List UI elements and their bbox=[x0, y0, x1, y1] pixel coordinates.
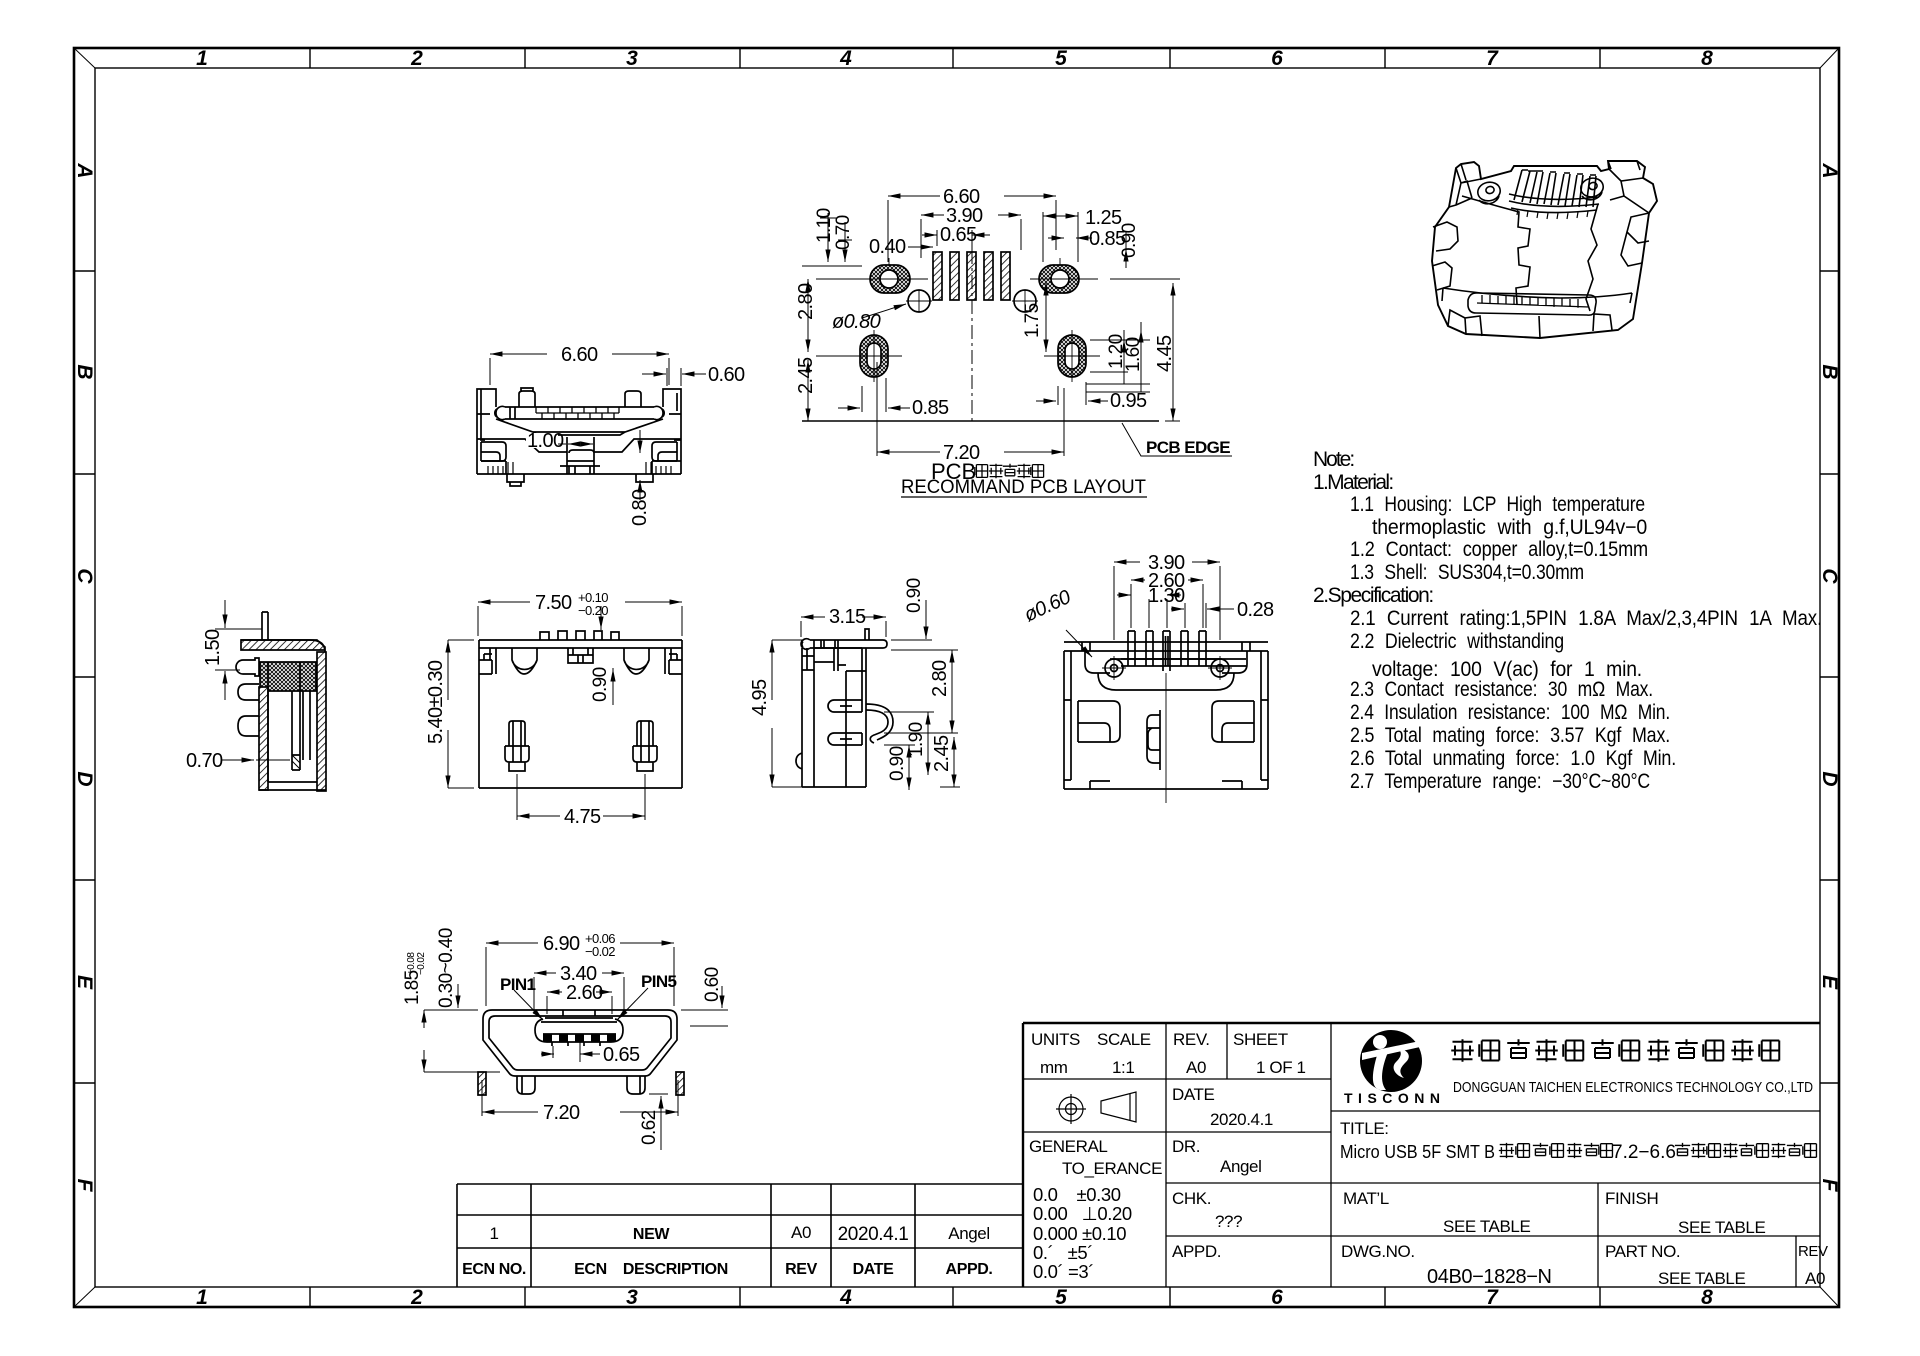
svg-text:DATE: DATE bbox=[853, 1261, 894, 1278]
svg-text:PIN5: PIN5 bbox=[641, 972, 677, 991]
svg-text:1: 1 bbox=[489, 1224, 498, 1243]
svg-text:1.3 Shell: SUS304,t=0.30mm: 1.3 Shell: SUS304,t=0.30mm bbox=[1350, 561, 1584, 584]
svg-text:PART NO.: PART NO. bbox=[1605, 1242, 1680, 1261]
svg-text:C: C bbox=[73, 568, 96, 584]
svg-text:1.1 Housing: LCP High temp: 1.1 Housing: LCP High temperature bbox=[1350, 493, 1645, 516]
svg-text:A0: A0 bbox=[791, 1223, 811, 1242]
svg-text:0.0 ±0.30: 0.0 ±0.30 bbox=[1033, 1184, 1121, 1205]
svg-text:−0.02: −0.02 bbox=[585, 944, 615, 959]
svg-text:1.Material:: 1.Material: bbox=[1313, 471, 1394, 494]
svg-text:DONGGUAN TAICHEN ELECTRONICS: DONGGUAN TAICHEN ELECTRONICS TECHNOLOGY … bbox=[1453, 1080, 1813, 1096]
svg-text:Note:: Note: bbox=[1313, 448, 1355, 471]
svg-text:7.2−6.6: 7.2−6.6 bbox=[1612, 1142, 1676, 1163]
svg-text:4.75: 4.75 bbox=[564, 806, 601, 828]
svg-text:NEW: NEW bbox=[633, 1226, 670, 1243]
svg-text:0.90: 0.90 bbox=[1119, 223, 1140, 258]
svg-text:ECN DESCRIPTION: ECN DESCRIPTION bbox=[574, 1261, 728, 1278]
svg-text:0.28: 0.28 bbox=[1237, 599, 1274, 621]
svg-text:1.2 Contact: copper alloy,t: 1.2 Contact: copper alloy,t=0.15mm bbox=[1350, 538, 1648, 561]
svg-text:2: 2 bbox=[410, 47, 423, 70]
svg-text:4.95: 4.95 bbox=[749, 679, 771, 716]
svg-text:2.80: 2.80 bbox=[795, 283, 817, 320]
svg-text:2.Specification:: 2.Specification: bbox=[1313, 584, 1434, 607]
svg-text:thermoplastic with g.f,UL94v: thermoplastic with g.f,UL94v−0 bbox=[1372, 516, 1647, 539]
svg-text:TISCONN: TISCONN bbox=[1344, 1090, 1446, 1106]
svg-text:2.4 Insulation resistance:: 2.4 Insulation resistance: 100 MΩ Min. bbox=[1350, 701, 1670, 724]
svg-text:6.60: 6.60 bbox=[561, 344, 598, 366]
svg-text:REV: REV bbox=[1798, 1243, 1828, 1260]
svg-text:2020.4.1: 2020.4.1 bbox=[1210, 1110, 1273, 1129]
svg-text:D: D bbox=[1818, 771, 1841, 786]
svg-text:0.000 ±0.10: 0.000 ±0.10 bbox=[1033, 1223, 1126, 1244]
svg-text:8: 8 bbox=[1701, 47, 1713, 70]
svg-text:3.15: 3.15 bbox=[829, 606, 866, 628]
svg-text:ECN NO.: ECN NO. bbox=[462, 1261, 526, 1278]
svg-text:0.70: 0.70 bbox=[186, 750, 223, 772]
svg-text:1: 1 bbox=[196, 47, 208, 70]
svg-text:C: C bbox=[1818, 568, 1841, 584]
svg-text:2.6 Total unmating force:: 2.6 Total unmating force: 1.0 Kgf Min. bbox=[1350, 747, 1676, 770]
svg-text:F: F bbox=[73, 1179, 96, 1193]
svg-text:???: ??? bbox=[1215, 1212, 1242, 1231]
svg-text:1.25: 1.25 bbox=[1085, 207, 1122, 229]
svg-text:B: B bbox=[73, 364, 96, 379]
svg-text:SCALE: SCALE bbox=[1097, 1030, 1151, 1049]
svg-text:ø0.80: ø0.80 bbox=[832, 311, 881, 333]
svg-text:D: D bbox=[73, 771, 96, 786]
svg-text:A: A bbox=[73, 162, 96, 178]
svg-text:3: 3 bbox=[626, 1286, 638, 1309]
svg-text:0.40: 0.40 bbox=[869, 236, 906, 258]
svg-text:0.95: 0.95 bbox=[1110, 390, 1147, 412]
svg-text:A0: A0 bbox=[1186, 1058, 1206, 1077]
svg-text:APPD.: APPD. bbox=[946, 1261, 993, 1278]
svg-text:1.50: 1.50 bbox=[202, 629, 224, 666]
svg-text:PIN1: PIN1 bbox=[500, 975, 536, 994]
svg-text:1.30: 1.30 bbox=[1148, 585, 1185, 607]
svg-text:1.75: 1.75 bbox=[1022, 303, 1043, 338]
svg-text:6: 6 bbox=[1271, 1286, 1283, 1309]
svg-text:SEE TABLE: SEE TABLE bbox=[1678, 1218, 1765, 1237]
svg-text:4.45: 4.45 bbox=[1154, 335, 1176, 372]
svg-text:0.60: 0.60 bbox=[708, 364, 745, 386]
svg-text:−0.02: −0.02 bbox=[416, 952, 427, 975]
svg-text:0.0´ =3´: 0.0´ =3´ bbox=[1033, 1261, 1094, 1282]
svg-text:1.60: 1.60 bbox=[1123, 337, 1144, 372]
svg-text:1.10: 1.10 bbox=[814, 208, 835, 243]
svg-text:2.5 Total mating force: 3.: 2.5 Total mating force: 3.57 Kgf Max. bbox=[1350, 724, 1670, 747]
svg-text:0.90: 0.90 bbox=[904, 578, 925, 613]
svg-text:2020.4.1: 2020.4.1 bbox=[838, 1224, 909, 1245]
svg-text:0.00 ⊥0.20: 0.00 ⊥0.20 bbox=[1033, 1203, 1132, 1224]
svg-text:A0: A0 bbox=[1805, 1269, 1825, 1288]
svg-text:A: A bbox=[1818, 162, 1841, 178]
svg-text:0.30~0.40: 0.30~0.40 bbox=[436, 928, 457, 1008]
svg-text:2.1 Current rating:1,5PIN 1: 2.1 Current rating:1,5PIN 1.8A Max/2,3,4… bbox=[1350, 607, 1822, 630]
svg-text:0.60: 0.60 bbox=[702, 967, 723, 1002]
svg-text:mm: mm bbox=[1040, 1058, 1068, 1077]
svg-text:4: 4 bbox=[839, 1286, 852, 1309]
svg-text:0.´ ±5´: 0.´ ±5´ bbox=[1033, 1242, 1093, 1263]
svg-text:1.00: 1.00 bbox=[527, 430, 564, 452]
svg-text:0.70: 0.70 bbox=[833, 215, 854, 250]
svg-text:SEE TABLE: SEE TABLE bbox=[1658, 1269, 1745, 1288]
svg-text:0.80: 0.80 bbox=[629, 489, 651, 526]
svg-text:7.50: 7.50 bbox=[535, 592, 572, 614]
svg-text:SHEET: SHEET bbox=[1233, 1030, 1288, 1049]
svg-text:7: 7 bbox=[1486, 47, 1499, 70]
svg-text:2.3 Contact resistance: 30: 2.3 Contact resistance: 30 mΩ Max. bbox=[1350, 678, 1653, 701]
svg-text:2.60: 2.60 bbox=[566, 982, 603, 1004]
svg-text:2.45: 2.45 bbox=[795, 357, 817, 394]
svg-text:PCB EDGE: PCB EDGE bbox=[1146, 438, 1230, 457]
svg-text:1 OF 1: 1 OF 1 bbox=[1256, 1058, 1306, 1077]
svg-text:5.40±0.30: 5.40±0.30 bbox=[425, 660, 447, 744]
svg-text:F: F bbox=[1818, 1179, 1841, 1193]
svg-text:RECOMMAND PCB LAYOUT: RECOMMAND PCB LAYOUT bbox=[901, 476, 1146, 498]
svg-text:0.62: 0.62 bbox=[639, 1110, 660, 1145]
svg-text:7.20: 7.20 bbox=[543, 1102, 580, 1124]
svg-text:0.65: 0.65 bbox=[940, 224, 977, 246]
svg-text:FINISH: FINISH bbox=[1605, 1189, 1658, 1208]
svg-text:E: E bbox=[1818, 975, 1841, 990]
svg-text:0.90: 0.90 bbox=[887, 746, 908, 781]
svg-text:0.85: 0.85 bbox=[912, 397, 949, 419]
svg-text:2.2 Dielectric withstanding: 2.2 Dielectric withstanding bbox=[1350, 630, 1564, 653]
svg-text:DWG.NO.: DWG.NO. bbox=[1341, 1242, 1415, 1261]
svg-text:2.80: 2.80 bbox=[929, 660, 951, 697]
svg-text:0.90: 0.90 bbox=[590, 667, 611, 702]
svg-text:3: 3 bbox=[626, 47, 638, 70]
svg-text:2.7 Temperature range: −30°: 2.7 Temperature range: −30°C~80°C bbox=[1350, 770, 1650, 793]
svg-text:SEE TABLE: SEE TABLE bbox=[1443, 1217, 1530, 1236]
svg-text:7: 7 bbox=[1486, 1286, 1499, 1309]
svg-text:5: 5 bbox=[1055, 1286, 1067, 1309]
svg-text:Angel: Angel bbox=[948, 1224, 989, 1243]
svg-text:−0.20: −0.20 bbox=[578, 603, 608, 618]
svg-text:Angel: Angel bbox=[1220, 1157, 1261, 1176]
svg-text:E: E bbox=[73, 975, 96, 990]
svg-text:REV: REV bbox=[785, 1261, 817, 1278]
svg-text:1:1: 1:1 bbox=[1112, 1058, 1134, 1077]
svg-text:8: 8 bbox=[1701, 1286, 1713, 1309]
svg-text:04B0−1828−N: 04B0−1828−N bbox=[1427, 1266, 1552, 1288]
svg-text:MAT’L: MAT’L bbox=[1343, 1189, 1389, 1208]
svg-text:6: 6 bbox=[1271, 47, 1283, 70]
svg-text:B: B bbox=[1818, 364, 1841, 379]
svg-text:TITLE:: TITLE: bbox=[1340, 1119, 1389, 1138]
svg-text:UNITS: UNITS bbox=[1031, 1030, 1080, 1049]
svg-text:1: 1 bbox=[196, 1286, 208, 1309]
svg-text:APPD.: APPD. bbox=[1172, 1242, 1221, 1261]
svg-text:Micro USB 5F SMT B: Micro USB 5F SMT B bbox=[1340, 1142, 1495, 1162]
svg-text:DR.: DR. bbox=[1172, 1137, 1200, 1156]
svg-text:0.65: 0.65 bbox=[603, 1044, 640, 1066]
svg-text:4: 4 bbox=[839, 47, 852, 70]
svg-text:2: 2 bbox=[410, 1286, 423, 1309]
svg-text:6.90: 6.90 bbox=[543, 933, 580, 955]
svg-text:2.45: 2.45 bbox=[931, 735, 953, 772]
svg-text:GENERAL: GENERAL bbox=[1029, 1137, 1107, 1156]
svg-text:REV.: REV. bbox=[1173, 1030, 1210, 1049]
svg-text:5: 5 bbox=[1055, 47, 1067, 70]
svg-text:DATE: DATE bbox=[1172, 1085, 1215, 1104]
svg-text:1.90: 1.90 bbox=[906, 722, 927, 757]
svg-text:CHK.: CHK. bbox=[1172, 1189, 1211, 1208]
svg-text:TO_ERANCE: TO_ERANCE bbox=[1062, 1159, 1162, 1178]
